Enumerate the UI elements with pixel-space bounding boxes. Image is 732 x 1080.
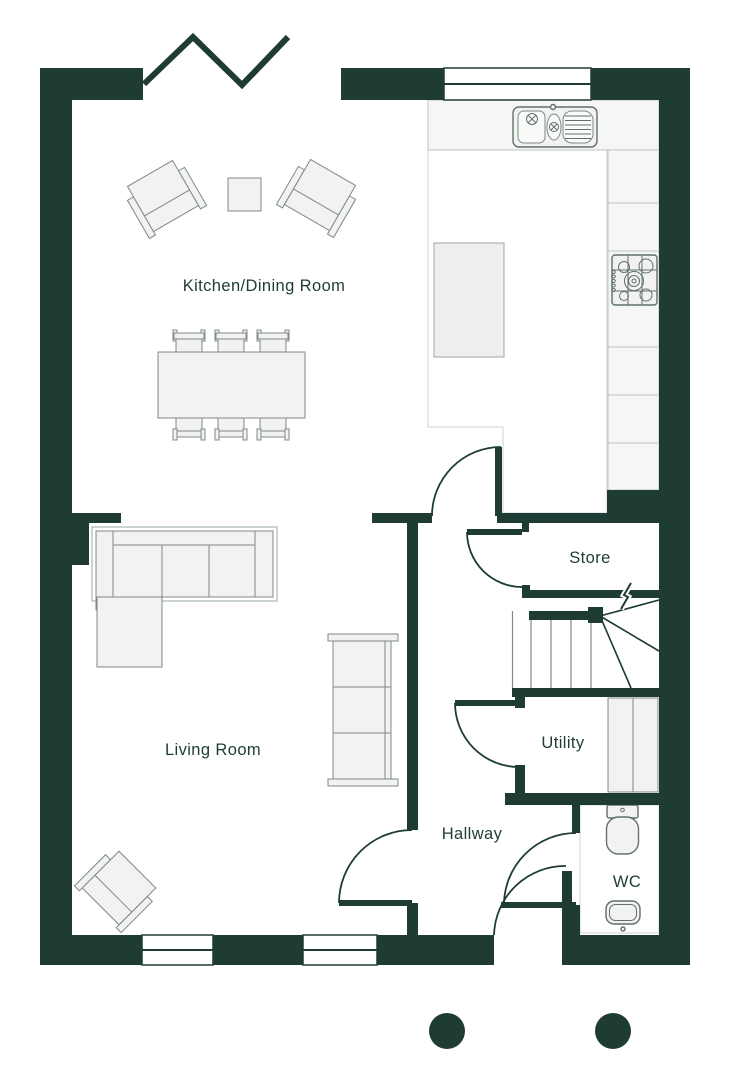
bottom-wall xyxy=(377,935,494,965)
dining-chair xyxy=(173,417,205,440)
door-leaf xyxy=(339,900,412,906)
door-swing-arc xyxy=(455,703,519,767)
store-wall-stub xyxy=(522,523,529,532)
counter-corner-wall xyxy=(607,490,659,515)
wall-pier xyxy=(72,513,121,523)
corner-sofa xyxy=(92,527,277,667)
dining-chair xyxy=(257,330,289,353)
door-swing-arc xyxy=(432,447,501,516)
door-leaf xyxy=(562,871,572,935)
floor-plan: Kitchen/Dining Room Living Room Hallway … xyxy=(0,0,732,1080)
store-label: Store xyxy=(569,549,610,567)
top-window xyxy=(444,68,591,100)
counter-side-run xyxy=(608,150,659,490)
dining-chair xyxy=(215,417,247,440)
utility-appliances xyxy=(608,698,658,792)
dining-chair xyxy=(215,330,247,353)
dining-set xyxy=(158,330,305,440)
utility-wall-stub xyxy=(515,765,525,793)
stair-newel xyxy=(588,607,603,623)
door-swing-arc xyxy=(494,866,566,935)
dining-chair xyxy=(257,417,289,440)
wc-wall-stub xyxy=(572,905,580,935)
dining-table xyxy=(158,352,305,418)
living-room-label: Living Room xyxy=(165,741,261,759)
left-wall xyxy=(40,68,72,965)
wall-pier xyxy=(72,523,89,565)
top-wall xyxy=(341,68,444,100)
hallway-wall-stub xyxy=(407,903,418,935)
winder-edge xyxy=(600,616,659,651)
door-leaf xyxy=(467,529,522,535)
wc-wall-stub xyxy=(572,805,580,833)
armchair xyxy=(276,156,361,237)
right-wall xyxy=(659,68,690,965)
bifold-opening-icon xyxy=(144,37,288,85)
winder-edge xyxy=(600,600,659,616)
wc-label: WC xyxy=(613,873,641,891)
door-swing-arc xyxy=(339,830,412,903)
legend-dot xyxy=(429,1013,465,1049)
store-door xyxy=(467,529,522,587)
top-wall xyxy=(40,68,143,100)
kitchen-sink-icon xyxy=(513,105,597,148)
media-unit xyxy=(328,634,398,786)
basin-icon xyxy=(606,901,640,931)
kitchen-island xyxy=(434,243,504,357)
door-swing-arc xyxy=(467,532,522,587)
bottom-wall xyxy=(562,935,690,965)
floor-plan-svg: Kitchen/Dining Room Living Room Hallway … xyxy=(0,0,732,1080)
bottom-wall xyxy=(213,935,303,965)
toilet-icon xyxy=(607,805,639,854)
kitchen-dining-label: Kitchen/Dining Room xyxy=(183,277,346,295)
utility-door xyxy=(455,700,519,767)
utility-bottom-wall xyxy=(505,793,659,805)
hallway-wall xyxy=(407,523,418,830)
winder-edge xyxy=(600,616,631,688)
stairs-bottom-wall xyxy=(512,688,659,697)
front-door xyxy=(494,866,572,935)
armchair xyxy=(121,157,206,238)
bottom-window-1 xyxy=(142,935,213,965)
bottom-wall xyxy=(40,935,142,965)
store-bottom-wall xyxy=(522,590,659,598)
legend-dot xyxy=(595,1013,631,1049)
bottom-window-2 xyxy=(303,935,377,965)
hob-icon xyxy=(612,255,657,305)
stair-break-icon xyxy=(621,583,631,609)
side-table xyxy=(228,178,261,211)
living-room-door xyxy=(339,830,412,906)
hallway-label: Hallway xyxy=(442,825,503,843)
top-wall xyxy=(591,68,690,100)
door-leaf xyxy=(455,700,519,706)
armchair xyxy=(74,846,160,932)
wall-stub xyxy=(372,513,432,523)
dining-chair xyxy=(173,330,205,353)
door-leaf xyxy=(495,447,502,516)
kitchen-door xyxy=(432,447,502,516)
utility-label: Utility xyxy=(541,734,584,752)
staircase xyxy=(513,600,660,688)
